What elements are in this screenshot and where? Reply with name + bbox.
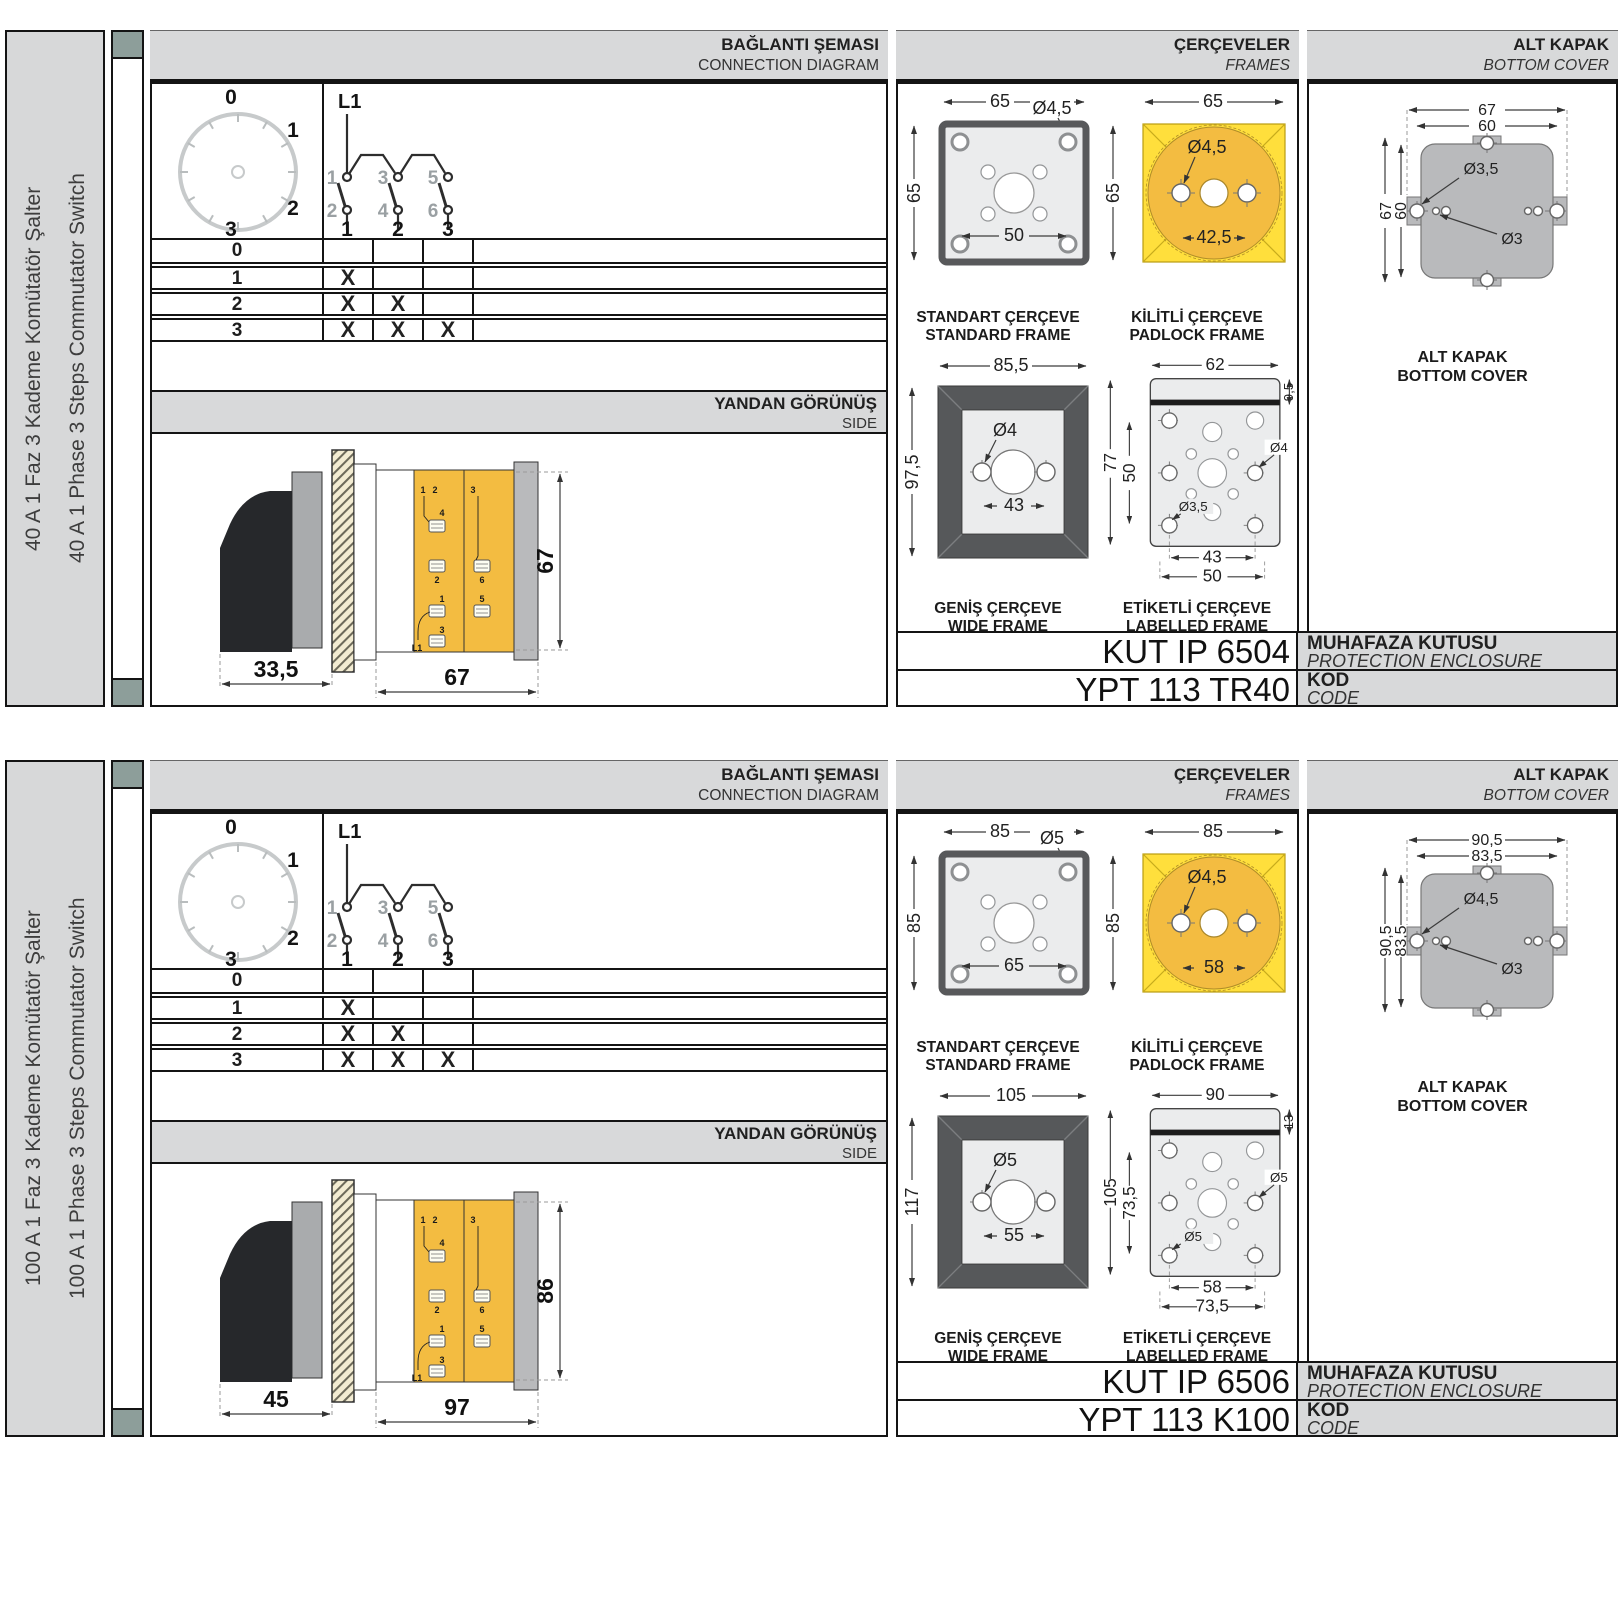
standard-frame-label-tr: STANDART ÇERÇEVE [898, 1039, 1098, 1057]
wide-frame-drawing: 105 117 Ø5 [898, 1084, 1098, 1324]
dim-height: 97,5 [902, 454, 922, 489]
terminal-label: 5 [479, 1324, 484, 1334]
padlock-frame: 85 85 Ø4,5 [1097, 818, 1297, 1074]
bottom-cover-label-tr: ALT KAPAK [1309, 1078, 1616, 1097]
dial-pos-1: 1 [287, 849, 299, 872]
binding-column [111, 760, 144, 1437]
output-1: 1 [341, 948, 353, 968]
side-view-drawing-wrap: 1 2 4 2 3 6 1 5 3 L1 86 45 [152, 1166, 886, 1442]
dim-hole: Ø5 [993, 1150, 1017, 1170]
row-label: 1 [152, 268, 324, 288]
product-code-desc: KOD CODE [1296, 1401, 1616, 1435]
side-view-title-en: SIDE [152, 1144, 877, 1163]
header-connection-tr: BAĞLANTI ŞEMASI [150, 764, 879, 786]
enclosure-desc: MUHAFAZA KUTUSU PROTECTION ENCLOSURE [1296, 633, 1616, 669]
circuit-cell: L1 [324, 84, 886, 238]
standard-frame: 65 Ø4,5 65 50 [898, 88, 1098, 344]
row-label: 3 [152, 320, 324, 340]
mark-cell: X [324, 998, 374, 1018]
contact-6: 6 [428, 931, 439, 952]
section-main: BAĞLANTI ŞEMASI CONNECTION DIAGRAM ÇERÇE… [146, 30, 1618, 707]
product-code-desc-en: CODE [1307, 690, 1616, 706]
contact-1: 1 [327, 168, 338, 189]
bottom-cover-label-tr: ALT KAPAK [1309, 348, 1616, 367]
dim-hole-bottom: Ø5 [1184, 1229, 1202, 1244]
terminal-label: 5 [479, 594, 484, 604]
product-code-row: YPT 113 TR40 KOD CODE [896, 669, 1618, 707]
bottom-cover-label-en: BOTTOM COVER [1309, 367, 1616, 386]
connection-panel: 0 1 2 3 L1 [150, 82, 888, 707]
bottom-cover-panel: 67 60 67 60 [1307, 82, 1618, 633]
row-label: 1 [152, 998, 324, 1018]
dial-pos-2: 2 [287, 927, 299, 950]
dim-inner: 65 [1004, 955, 1024, 975]
dim-w2: 83,5 [1471, 848, 1502, 865]
header-cover-en: BOTTOM COVER [1307, 56, 1609, 76]
header-connection-en: CONNECTION DIAGRAM [150, 786, 879, 806]
mark-cell [424, 294, 474, 314]
dim-top: 9,5 [1281, 383, 1296, 402]
dim-b1: 43 [1203, 546, 1222, 566]
row-label: 3 [152, 1050, 324, 1070]
product-code-row: YPT 113 K100 KOD CODE [896, 1399, 1618, 1437]
dim-height: 86 [532, 1278, 558, 1304]
side-label-english: 100 A 1 Phase 3 Steps Commutator Switch [57, 762, 99, 1435]
dim-w2: 60 [1478, 118, 1496, 135]
table-row: 0 [152, 970, 886, 994]
product-section: 40 A 1 Faz 3 Kademe Komütatör Şalter 40 … [5, 30, 1618, 707]
side-view-header: YANDAN GÖRÜNÜŞ SIDE [152, 390, 886, 434]
wide-frame: 85,5 97,5 Ø4 [898, 354, 1098, 635]
dim-hole1: Ø3,5 [1464, 161, 1499, 178]
labelled-frame-drawing: 62 9,5 77 50 [1097, 350, 1297, 594]
mark-cell: X [324, 320, 374, 340]
dim-width: 85,5 [993, 355, 1028, 375]
labelled-frame-label-tr: ETİKETLİ ÇERÇEVE [1097, 600, 1297, 618]
product-code-desc-en: CODE [1307, 1420, 1616, 1436]
dim-front: 45 [263, 1386, 289, 1412]
padlock-frame: 65 65 Ø4,5 [1097, 88, 1297, 344]
switch-dial-cell: 0 1 2 3 [152, 84, 324, 238]
mark-cell: X [324, 1050, 374, 1070]
dim-inner: 50 [1004, 225, 1024, 245]
dim-height: 65 [1103, 183, 1123, 203]
contact-1: 1 [327, 898, 338, 919]
dim-mid: 50 [1119, 463, 1139, 482]
wide-frame-label-tr: GENİŞ ÇERÇEVE [898, 600, 1098, 618]
wide-frame-drawing: 85,5 97,5 Ø4 [898, 354, 1098, 594]
terminal-label: 1 [420, 485, 425, 495]
labelled-frame-label-tr: ETİKETLİ ÇERÇEVE [1097, 1330, 1297, 1348]
header-frames-en: FRAMES [896, 786, 1290, 806]
dim-hole-right: Ø5 [1270, 1170, 1288, 1185]
side-label-english: 40 A 1 Phase 3 Steps Commutator Switch [57, 32, 99, 705]
dim-b1: 58 [1203, 1276, 1222, 1296]
dim-hole: Ø4,5 [1032, 98, 1071, 118]
contact-4: 4 [378, 201, 389, 222]
padlock-frame-drawing: 65 65 Ø4,5 [1097, 88, 1297, 303]
labelled-frame: 90 13 105 73,5 [1097, 1080, 1297, 1365]
dial-pos-2: 2 [287, 197, 299, 220]
standard-frame: 85 Ø5 85 65 [898, 818, 1098, 1074]
header-cover-tr: ALT KAPAK [1307, 34, 1609, 56]
mark-cell [424, 1024, 474, 1044]
bottom-cover-label-en: BOTTOM COVER [1309, 1097, 1616, 1116]
standard-frame-label-tr: STANDART ÇERÇEVE [898, 309, 1098, 327]
mark-cell [374, 268, 424, 288]
terminal-label: 1 [439, 594, 444, 604]
bottom-cover-panel: 90,5 83,5 90,5 83,5 [1307, 812, 1618, 1363]
dim-hole1: Ø4,5 [1464, 891, 1499, 908]
contact-6: 6 [428, 201, 439, 222]
dim-height: 77 [1100, 453, 1120, 472]
empty-cell [474, 970, 886, 992]
header-frames-tr: ÇERÇEVELER [896, 34, 1290, 56]
switching-table: 0 1 X 2 X X [152, 240, 886, 346]
mark-cell [424, 970, 474, 992]
dim-width: 65 [990, 91, 1010, 111]
table-row: 3 X X X [152, 1048, 886, 1072]
switching-table: 0 1 X 2 X X [152, 970, 886, 1076]
enclosure-desc: MUHAFAZA KUTUSU PROTECTION ENCLOSURE [1296, 1363, 1616, 1399]
standard-frame-label-en: STANDARD FRAME [898, 327, 1098, 345]
side-view-title-tr: YANDAN GÖRÜNÜŞ [152, 1123, 877, 1144]
binding-square-top [113, 32, 142, 59]
dim-hole: Ø5 [1040, 828, 1064, 848]
dim-height: 105 [1100, 1178, 1120, 1207]
side-label-turkish: 40 A 1 Faz 3 Kademe Komütatör Şalter [13, 32, 55, 705]
mark-cell: X [374, 1050, 424, 1070]
binding-square-bottom [113, 1408, 142, 1435]
product-code: YPT 113 K100 [898, 1401, 1296, 1435]
rotary-dial-drawing: 0 1 2 3 [152, 814, 324, 968]
enclosure-code: KUT IP 6506 [898, 1363, 1296, 1399]
diagram-row: 0 1 2 3 L1 [152, 84, 886, 240]
mark-cell: X [424, 1050, 474, 1070]
standard-frame-label-en: STANDARD FRAME [898, 1057, 1098, 1075]
dim-width: 85 [1203, 821, 1223, 841]
frames-panel: 85 Ø5 85 65 [896, 812, 1299, 1363]
labelled-frame-drawing: 90 13 105 73,5 [1097, 1080, 1297, 1324]
mark-cell: X [324, 294, 374, 314]
rotary-dial-drawing: 0 1 2 3 [152, 84, 324, 238]
terminal-label: 2 [434, 1305, 439, 1315]
terminal-label: 1 [420, 1215, 425, 1225]
wide-frame-label-tr: GENİŞ ÇERÇEVE [898, 1330, 1098, 1348]
dim-body: 97 [444, 1394, 470, 1420]
header-bottom-cover: ALT KAPAK BOTTOM COVER [1307, 760, 1618, 812]
terminal-label: L1 [412, 643, 423, 653]
dial-pos-0: 0 [225, 816, 237, 839]
side-view-header: YANDAN GÖRÜNÜŞ SIDE [152, 1120, 886, 1164]
product-code-desc: KOD CODE [1296, 671, 1616, 705]
terminal-label: 3 [439, 625, 444, 635]
dim-w1: 67 [1478, 102, 1496, 119]
padlock-frame-drawing: 85 85 Ø4,5 [1097, 818, 1297, 1033]
empty-cell [474, 320, 886, 340]
dim-hole2: Ø3 [1501, 231, 1522, 248]
terminal-label: 3 [439, 1355, 444, 1365]
side-view-drawing: 1 2 4 2 3 6 1 5 3 L1 67 33,5 [152, 436, 886, 707]
enclosure-code: KUT IP 6504 [898, 633, 1296, 669]
empty-cell [474, 1050, 886, 1070]
bottom-cover-drawing: 90,5 83,5 90,5 83,5 [1309, 832, 1616, 1062]
dim-b2: 73,5 [1196, 1296, 1229, 1316]
output-3: 3 [442, 948, 454, 968]
table-row: 1 X [152, 996, 886, 1020]
dim-height: 85 [1103, 913, 1123, 933]
product-code: YPT 113 TR40 [898, 671, 1296, 705]
table-row: 2 X X [152, 1022, 886, 1046]
row-label: 0 [152, 970, 324, 992]
standard-frame-drawing: 65 Ø4,5 65 50 [898, 88, 1098, 303]
output-2: 2 [392, 218, 404, 238]
circuit-drawing: L1 [324, 84, 884, 238]
header-frames-tr: ÇERÇEVELER [896, 764, 1290, 786]
mark-cell [424, 998, 474, 1018]
circuit-source-label: L1 [338, 821, 361, 843]
contact-5: 5 [428, 168, 439, 189]
terminal-label: 4 [439, 508, 444, 518]
binding-square-top [113, 762, 142, 789]
row-label: 2 [152, 1024, 324, 1044]
empty-cell [474, 998, 886, 1018]
terminal-label: 2 [434, 575, 439, 585]
padlock-frame-label-tr: KİLİTLİ ÇERÇEVE [1097, 1039, 1297, 1057]
circuit-cell: L1 [324, 814, 886, 968]
header-connection-diagram: BAĞLANTI ŞEMASI CONNECTION DIAGRAM [150, 30, 888, 82]
contact-5: 5 [428, 898, 439, 919]
mark-cell [424, 240, 474, 262]
dim-hole: Ø4,5 [1187, 137, 1226, 157]
padlock-frame-label-tr: KİLİTLİ ÇERÇEVE [1097, 309, 1297, 327]
header-frames: ÇERÇEVELER FRAMES [896, 760, 1299, 812]
side-view-drawing-wrap: 1 2 4 2 3 6 1 5 3 L1 67 33,5 [152, 436, 886, 712]
terminal-label: 4 [439, 1238, 444, 1248]
mark-cell [324, 240, 374, 262]
mark-cell [374, 240, 424, 262]
dim-inner: 58 [1204, 957, 1224, 977]
terminal-label: 6 [479, 575, 484, 585]
dial-pos-0: 0 [225, 86, 237, 109]
table-row: 1 X [152, 266, 886, 290]
mark-cell: X [374, 294, 424, 314]
dim-height: 85 [904, 913, 924, 933]
header-connection-en: CONNECTION DIAGRAM [150, 56, 879, 76]
output-3: 3 [442, 218, 454, 238]
contact-3: 3 [378, 168, 389, 189]
side-label-turkish: 100 A 1 Faz 3 Kademe Komütatör Şalter [13, 762, 55, 1435]
dim-width: 105 [996, 1085, 1026, 1105]
dial-pos-1: 1 [287, 119, 299, 142]
section-main: BAĞLANTI ŞEMASI CONNECTION DIAGRAM ÇERÇE… [146, 760, 1618, 1437]
dim-height: 67 [532, 548, 558, 574]
mark-cell [324, 970, 374, 992]
dim-width: 62 [1206, 354, 1225, 374]
padlock-frame-label-en: PADLOCK FRAME [1097, 327, 1297, 345]
dim-b2: 50 [1203, 566, 1222, 586]
table-row: 2 X X [152, 292, 886, 316]
header-bottom-cover: ALT KAPAK BOTTOM COVER [1307, 30, 1618, 82]
connection-panel: 0 1 2 3 L1 [150, 812, 888, 1437]
dim-body: 67 [444, 664, 470, 690]
terminal-label: 3 [470, 485, 475, 495]
dim-height: 117 [902, 1188, 922, 1217]
terminal-label: L1 [412, 1373, 423, 1383]
mark-cell: X [324, 268, 374, 288]
mark-cell: X [374, 320, 424, 340]
product-section: 100 A 1 Faz 3 Kademe Komütatör Şalter 10… [5, 760, 1618, 1437]
labelled-frame: 62 9,5 77 50 [1097, 350, 1297, 635]
frames-panel: 65 Ø4,5 65 50 [896, 82, 1299, 633]
dim-hole2: Ø3 [1501, 961, 1522, 978]
side-view-drawing: 1 2 4 2 3 6 1 5 3 L1 86 45 [152, 1166, 886, 1437]
header-cover-tr: ALT KAPAK [1307, 764, 1609, 786]
mark-cell [374, 970, 424, 992]
side-label-bar: 40 A 1 Faz 3 Kademe Komütatör Şalter 40 … [5, 30, 105, 707]
empty-cell [474, 294, 886, 314]
mark-cell: X [424, 320, 474, 340]
dim-hole-right: Ø4 [1270, 440, 1288, 455]
dim-inner: 55 [1004, 1225, 1024, 1245]
diagram-row: 0 1 2 3 L1 [152, 814, 886, 970]
binding-column [111, 30, 144, 707]
dim-width: 65 [1203, 91, 1223, 111]
dial-pos-3: 3 [225, 948, 237, 968]
mark-cell: X [324, 1024, 374, 1044]
dim-front: 33,5 [254, 656, 299, 682]
enclosure-code-row: KUT IP 6504 MUHAFAZA KUTUSU PROTECTION E… [896, 631, 1618, 671]
table-row: 3 X X X [152, 318, 886, 342]
terminal-label: 1 [439, 1324, 444, 1334]
contact-4: 4 [378, 931, 389, 952]
dim-mid: 73,5 [1119, 1186, 1139, 1219]
terminal-label: 3 [470, 1215, 475, 1225]
terminal-label: 6 [479, 1305, 484, 1315]
dim-top: 13 [1281, 1115, 1296, 1130]
enclosure-code-row: KUT IP 6506 MUHAFAZA KUTUSU PROTECTION E… [896, 1361, 1618, 1401]
header-cover-en: BOTTOM COVER [1307, 786, 1609, 806]
circuit-source-label: L1 [338, 91, 361, 113]
terminal-label: 2 [432, 1215, 437, 1225]
contact-2: 2 [327, 931, 338, 952]
header-frames-en: FRAMES [896, 56, 1290, 76]
dim-width: 85 [990, 821, 1010, 841]
header-frames: ÇERÇEVELER FRAMES [896, 30, 1299, 82]
mark-cell [424, 268, 474, 288]
row-label: 2 [152, 294, 324, 314]
enclosure-desc-en: PROTECTION ENCLOSURE [1307, 653, 1616, 670]
output-1: 1 [341, 218, 353, 238]
wide-frame: 105 117 Ø5 [898, 1084, 1098, 1365]
side-label-bar: 100 A 1 Faz 3 Kademe Komütatör Şalter 10… [5, 760, 105, 1437]
header-connection-tr: BAĞLANTI ŞEMASI [150, 34, 879, 56]
empty-cell [474, 240, 886, 262]
side-view-title-en: SIDE [152, 414, 877, 433]
dim-width: 90 [1206, 1084, 1225, 1104]
switch-dial-cell: 0 1 2 3 [152, 814, 324, 968]
contact-3: 3 [378, 898, 389, 919]
dim-height: 65 [904, 183, 924, 203]
row-label: 0 [152, 240, 324, 262]
padlock-frame-label-en: PADLOCK FRAME [1097, 1057, 1297, 1075]
dim-inner: 42,5 [1196, 227, 1231, 247]
mark-cell [374, 998, 424, 1018]
dim-hole-bottom: Ø3,5 [1179, 499, 1208, 514]
circuit-drawing: L1 [324, 814, 884, 968]
empty-cell [474, 1024, 886, 1044]
dim-inner: 43 [1004, 495, 1024, 515]
standard-frame-drawing: 85 Ø5 85 65 [898, 818, 1098, 1033]
enclosure-desc-en: PROTECTION ENCLOSURE [1307, 1383, 1616, 1400]
mark-cell: X [374, 1024, 424, 1044]
dial-pos-3: 3 [225, 218, 237, 238]
dim-w1: 90,5 [1471, 832, 1502, 849]
side-view-title-tr: YANDAN GÖRÜNÜŞ [152, 393, 877, 414]
terminal-label: 2 [432, 485, 437, 495]
dim-hole: Ø4,5 [1187, 867, 1226, 887]
empty-cell [474, 268, 886, 288]
bottom-cover-drawing: 67 60 67 60 [1309, 102, 1616, 332]
output-2: 2 [392, 948, 404, 968]
table-row: 0 [152, 240, 886, 264]
header-connection-diagram: BAĞLANTI ŞEMASI CONNECTION DIAGRAM [150, 760, 888, 812]
contact-2: 2 [327, 201, 338, 222]
binding-square-bottom [113, 678, 142, 705]
dim-hole: Ø4 [993, 420, 1017, 440]
